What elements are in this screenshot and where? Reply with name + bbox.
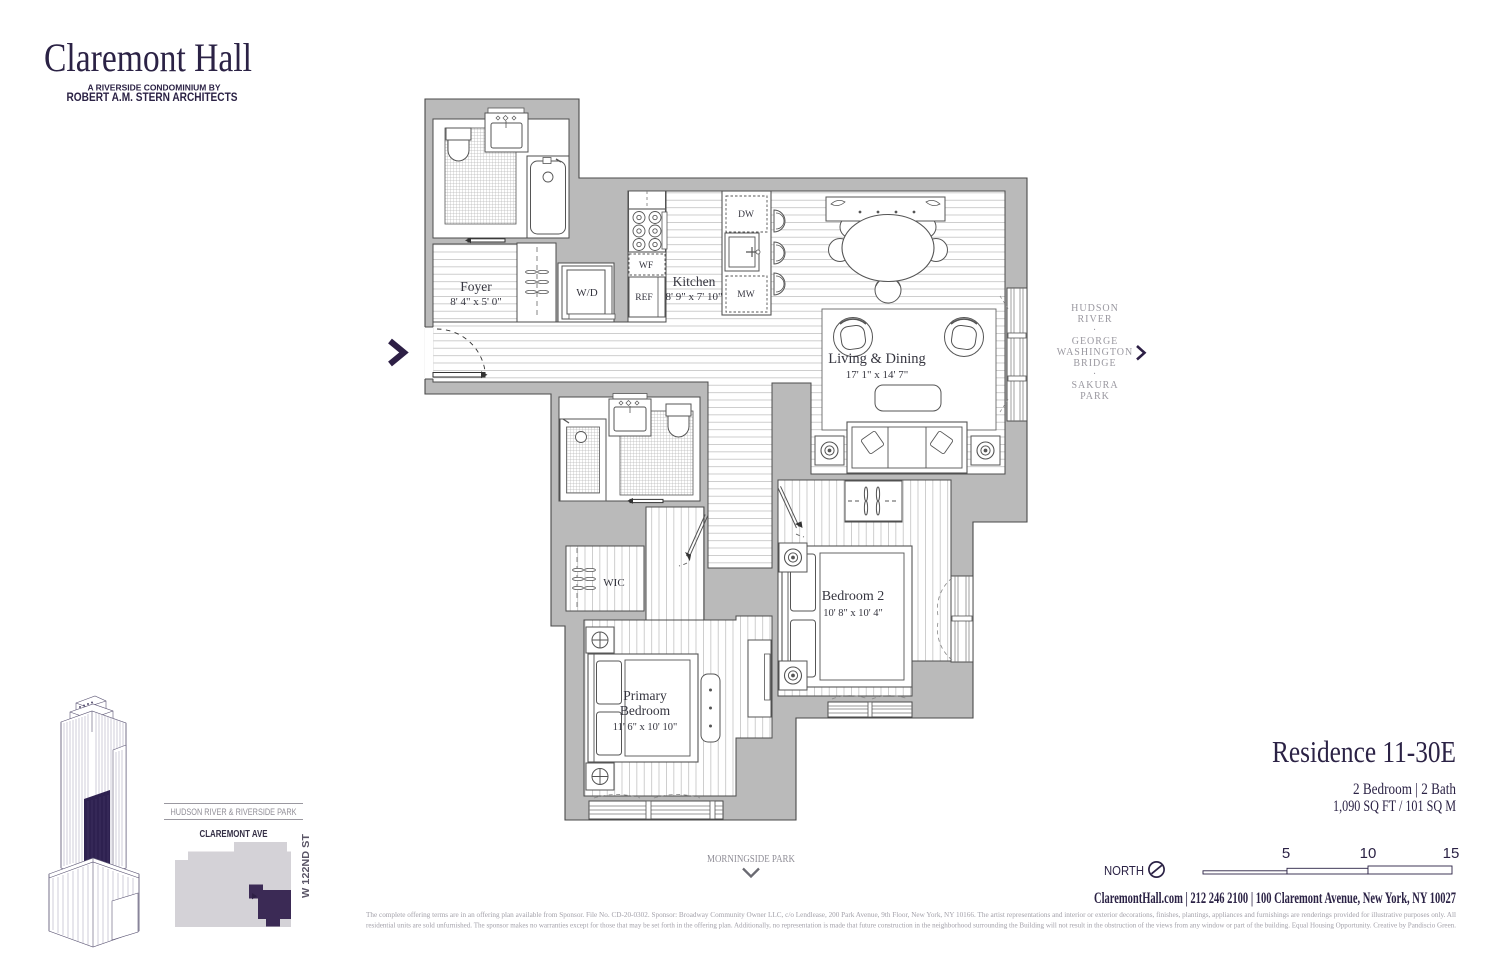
svg-text:MW: MW <box>737 290 754 300</box>
svg-text:10: 10 <box>1360 845 1377 862</box>
svg-text:WF: WF <box>639 261 653 271</box>
svg-text:NORTH: NORTH <box>1104 863 1144 878</box>
svg-text:REF: REF <box>635 293 652 303</box>
svg-text:8' 9" x 7' 10": 8' 9" x 7' 10" <box>666 291 723 303</box>
svg-text:CLAREMONT AVE: CLAREMONT AVE <box>200 829 268 840</box>
svg-text:Bedroom 2: Bedroom 2 <box>822 589 885 604</box>
svg-text:Primary: Primary <box>623 688 667 703</box>
svg-text:8' 4" x 5' 0": 8' 4" x 5' 0" <box>450 296 501 308</box>
svg-text:residential units are sold unf: residential units are sold unfurnished. … <box>366 921 1456 930</box>
svg-text:Kitchen: Kitchen <box>673 274 716 289</box>
svg-text:W/D: W/D <box>576 287 597 299</box>
svg-text:11' 6" x 10' 10": 11' 6" x 10' 10" <box>613 722 677 733</box>
svg-text:17' 1" x 14' 7": 17' 1" x 14' 7" <box>846 369 908 381</box>
svg-text:Foyer: Foyer <box>460 279 492 294</box>
svg-text:PARK: PARK <box>1080 391 1110 402</box>
svg-text:ROBERT A.M. STERN ARCHITECTS: ROBERT A.M. STERN ARCHITECTS <box>67 92 238 104</box>
svg-text:WIC: WIC <box>603 577 624 589</box>
svg-text:RIVER: RIVER <box>1078 314 1113 325</box>
svg-text:Claremont Hall: Claremont Hall <box>44 35 252 80</box>
svg-text:W 122ND ST: W 122ND ST <box>301 834 312 898</box>
svg-text:A RIVERSIDE CONDOMINIUM BY: A RIVERSIDE CONDOMINIUM BY <box>88 83 221 93</box>
svg-text:GEORGE: GEORGE <box>1072 336 1119 347</box>
svg-text:SAKURA: SAKURA <box>1071 380 1118 391</box>
svg-text:10' 8" x 10' 4": 10' 8" x 10' 4" <box>823 608 883 619</box>
svg-text:WASHINGTON: WASHINGTON <box>1057 347 1133 358</box>
svg-text:2 Bedroom | 2 Bath: 2 Bedroom | 2 Bath <box>1353 781 1456 798</box>
svg-text:Bedroom: Bedroom <box>620 703 671 718</box>
svg-text:MORNINGSIDE PARK: MORNINGSIDE PARK <box>707 854 795 865</box>
svg-text:5: 5 <box>1282 845 1290 862</box>
svg-text:DW: DW <box>738 210 754 220</box>
svg-text:BRIDGE: BRIDGE <box>1073 358 1116 369</box>
svg-text:The complete offering terms ar: The complete offering terms are in an of… <box>366 910 1456 919</box>
svg-text:HUDSON: HUDSON <box>1071 303 1119 314</box>
svg-text:·: · <box>1093 325 1097 336</box>
svg-text:Living & Dining: Living & Dining <box>828 351 925 367</box>
svg-text:1,090 SQ FT / 101 SQ M: 1,090 SQ FT / 101 SQ M <box>1333 798 1456 815</box>
svg-text:15: 15 <box>1443 845 1460 862</box>
svg-text:·: · <box>1093 369 1097 380</box>
svg-text:Residence 11-30E: Residence 11-30E <box>1272 734 1456 769</box>
svg-text:ClaremontHall.com | 212 246 21: ClaremontHall.com | 212 246 2100 | 100 C… <box>1094 890 1456 907</box>
svg-text:HUDSON RIVER & RIVERSIDE PARK: HUDSON RIVER & RIVERSIDE PARK <box>171 807 297 817</box>
